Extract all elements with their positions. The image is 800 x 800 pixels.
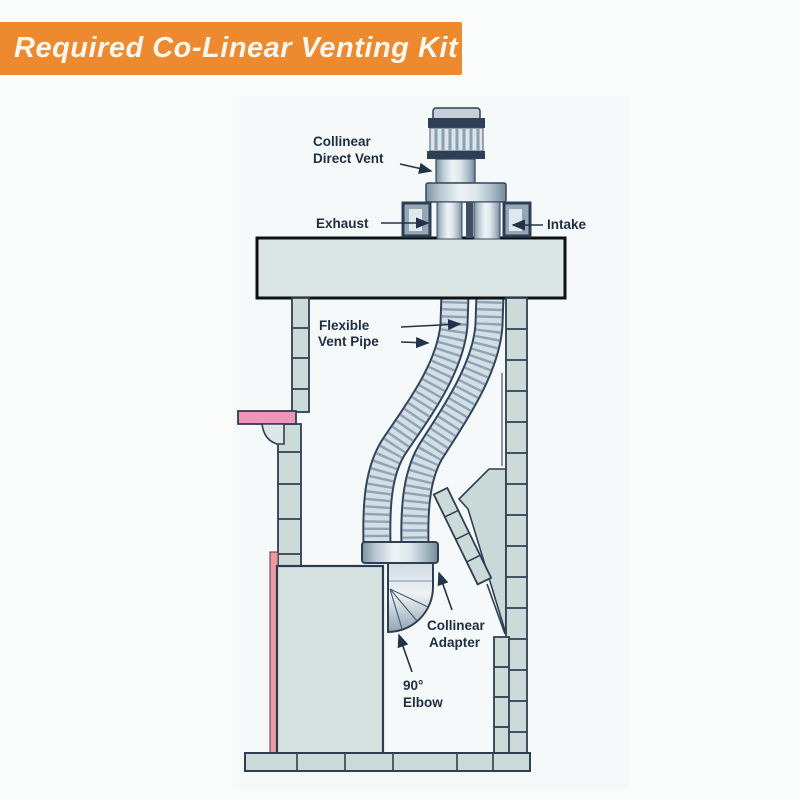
banner-title: Required Co-Linear Venting Kit [0,32,458,65]
label-intake: Intake [547,217,587,232]
label-collinear-adapter-line1: Collinear [427,618,486,633]
label-exhaust: Exhaust [316,216,369,231]
mantel-shelf [238,411,296,424]
vent-neck [436,159,475,183]
vent-drum [426,183,506,202]
collinear-adapter [362,542,438,563]
label-collinear-direct-vent-line2: Direct Vent [313,151,384,166]
label-collinear-adapter-line2: Adapter [429,635,481,650]
chimney-crown [257,238,565,298]
intake-port [504,203,530,236]
venting-diagram: Collinear Direct Vent Exhaust Intake Fle… [0,0,800,800]
exhaust-port [403,203,430,236]
label-collinear-direct-vent-line1: Collinear [313,134,372,149]
label-flexible-vent-pipe-line2: Vent Pipe [318,334,379,349]
label-elbow-line2: Elbow [403,695,443,710]
hearth-base [245,753,530,771]
flexible-vent-arrow-2 [401,342,428,343]
title-banner: Required Co-Linear Venting Kit [0,22,462,75]
label-flexible-vent-pipe-line1: Flexible [319,318,370,333]
label-elbow-line1: 90° [403,678,423,693]
firebox-insert [277,566,383,756]
